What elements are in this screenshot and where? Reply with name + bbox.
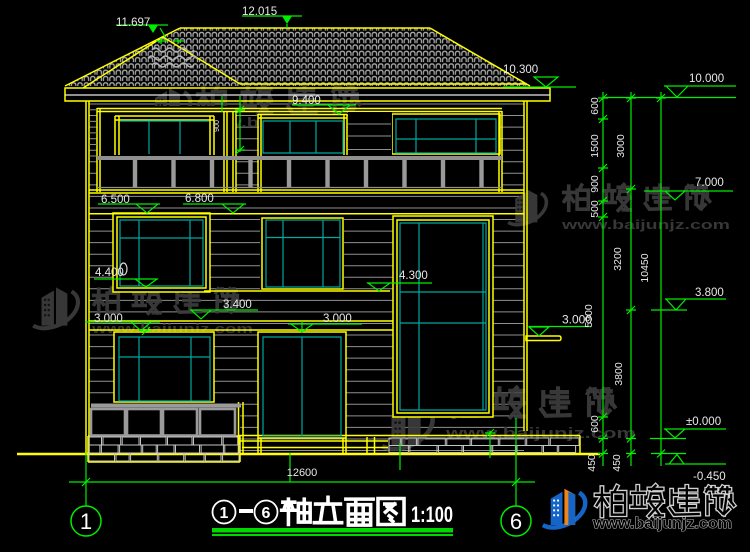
svg-text:3.000: 3.000 [94,313,123,325]
svg-text:-0.450: -0.450 [693,471,726,483]
svg-text:www.baijunjz.com: www.baijunjz.com [444,426,636,442]
svg-text:6.800: 6.800 [185,193,214,205]
svg-text:9.400: 9.400 [292,95,321,107]
svg-text:3200: 3200 [612,247,624,271]
svg-text:12.015: 12.015 [242,6,277,18]
svg-text:10.300: 10.300 [503,64,538,76]
svg-text:3.800: 3.800 [695,287,724,299]
svg-text:1: 1 [220,505,229,522]
svg-text:900: 900 [214,120,221,132]
svg-text:1:100: 1:100 [411,502,453,527]
svg-text:900: 900 [589,175,601,193]
svg-text:3.400: 3.400 [223,299,252,311]
svg-text:1500: 1500 [589,134,601,158]
svg-text:12600: 12600 [287,467,318,479]
svg-text:10.000: 10.000 [689,73,724,85]
svg-text:3800: 3800 [613,362,625,386]
svg-text:www.baijunjz.com: www.baijunjz.com [560,218,730,232]
svg-text:7.000: 7.000 [695,177,724,189]
svg-text:450: 450 [586,454,598,472]
svg-text:3.000: 3.000 [323,313,352,325]
svg-text:6: 6 [510,509,522,534]
svg-text:3000: 3000 [615,134,627,158]
svg-text:4.400: 4.400 [95,267,124,279]
svg-text:11.697: 11.697 [116,17,150,29]
svg-text:600: 600 [589,415,601,433]
svg-text:1: 1 [80,509,92,534]
svg-text:6: 6 [262,505,271,522]
svg-text:10450: 10450 [639,253,651,282]
svg-text:www.baijunjz.com: www.baijunjz.com [592,516,732,532]
svg-text:±0.000: ±0.000 [686,416,721,428]
svg-text:500: 500 [589,200,601,218]
svg-text:6.500: 6.500 [101,194,130,206]
svg-text:5900: 5900 [583,304,595,328]
svg-text:600: 600 [589,97,601,115]
svg-text:450: 450 [611,454,623,472]
svg-text:4.300: 4.300 [399,270,428,282]
